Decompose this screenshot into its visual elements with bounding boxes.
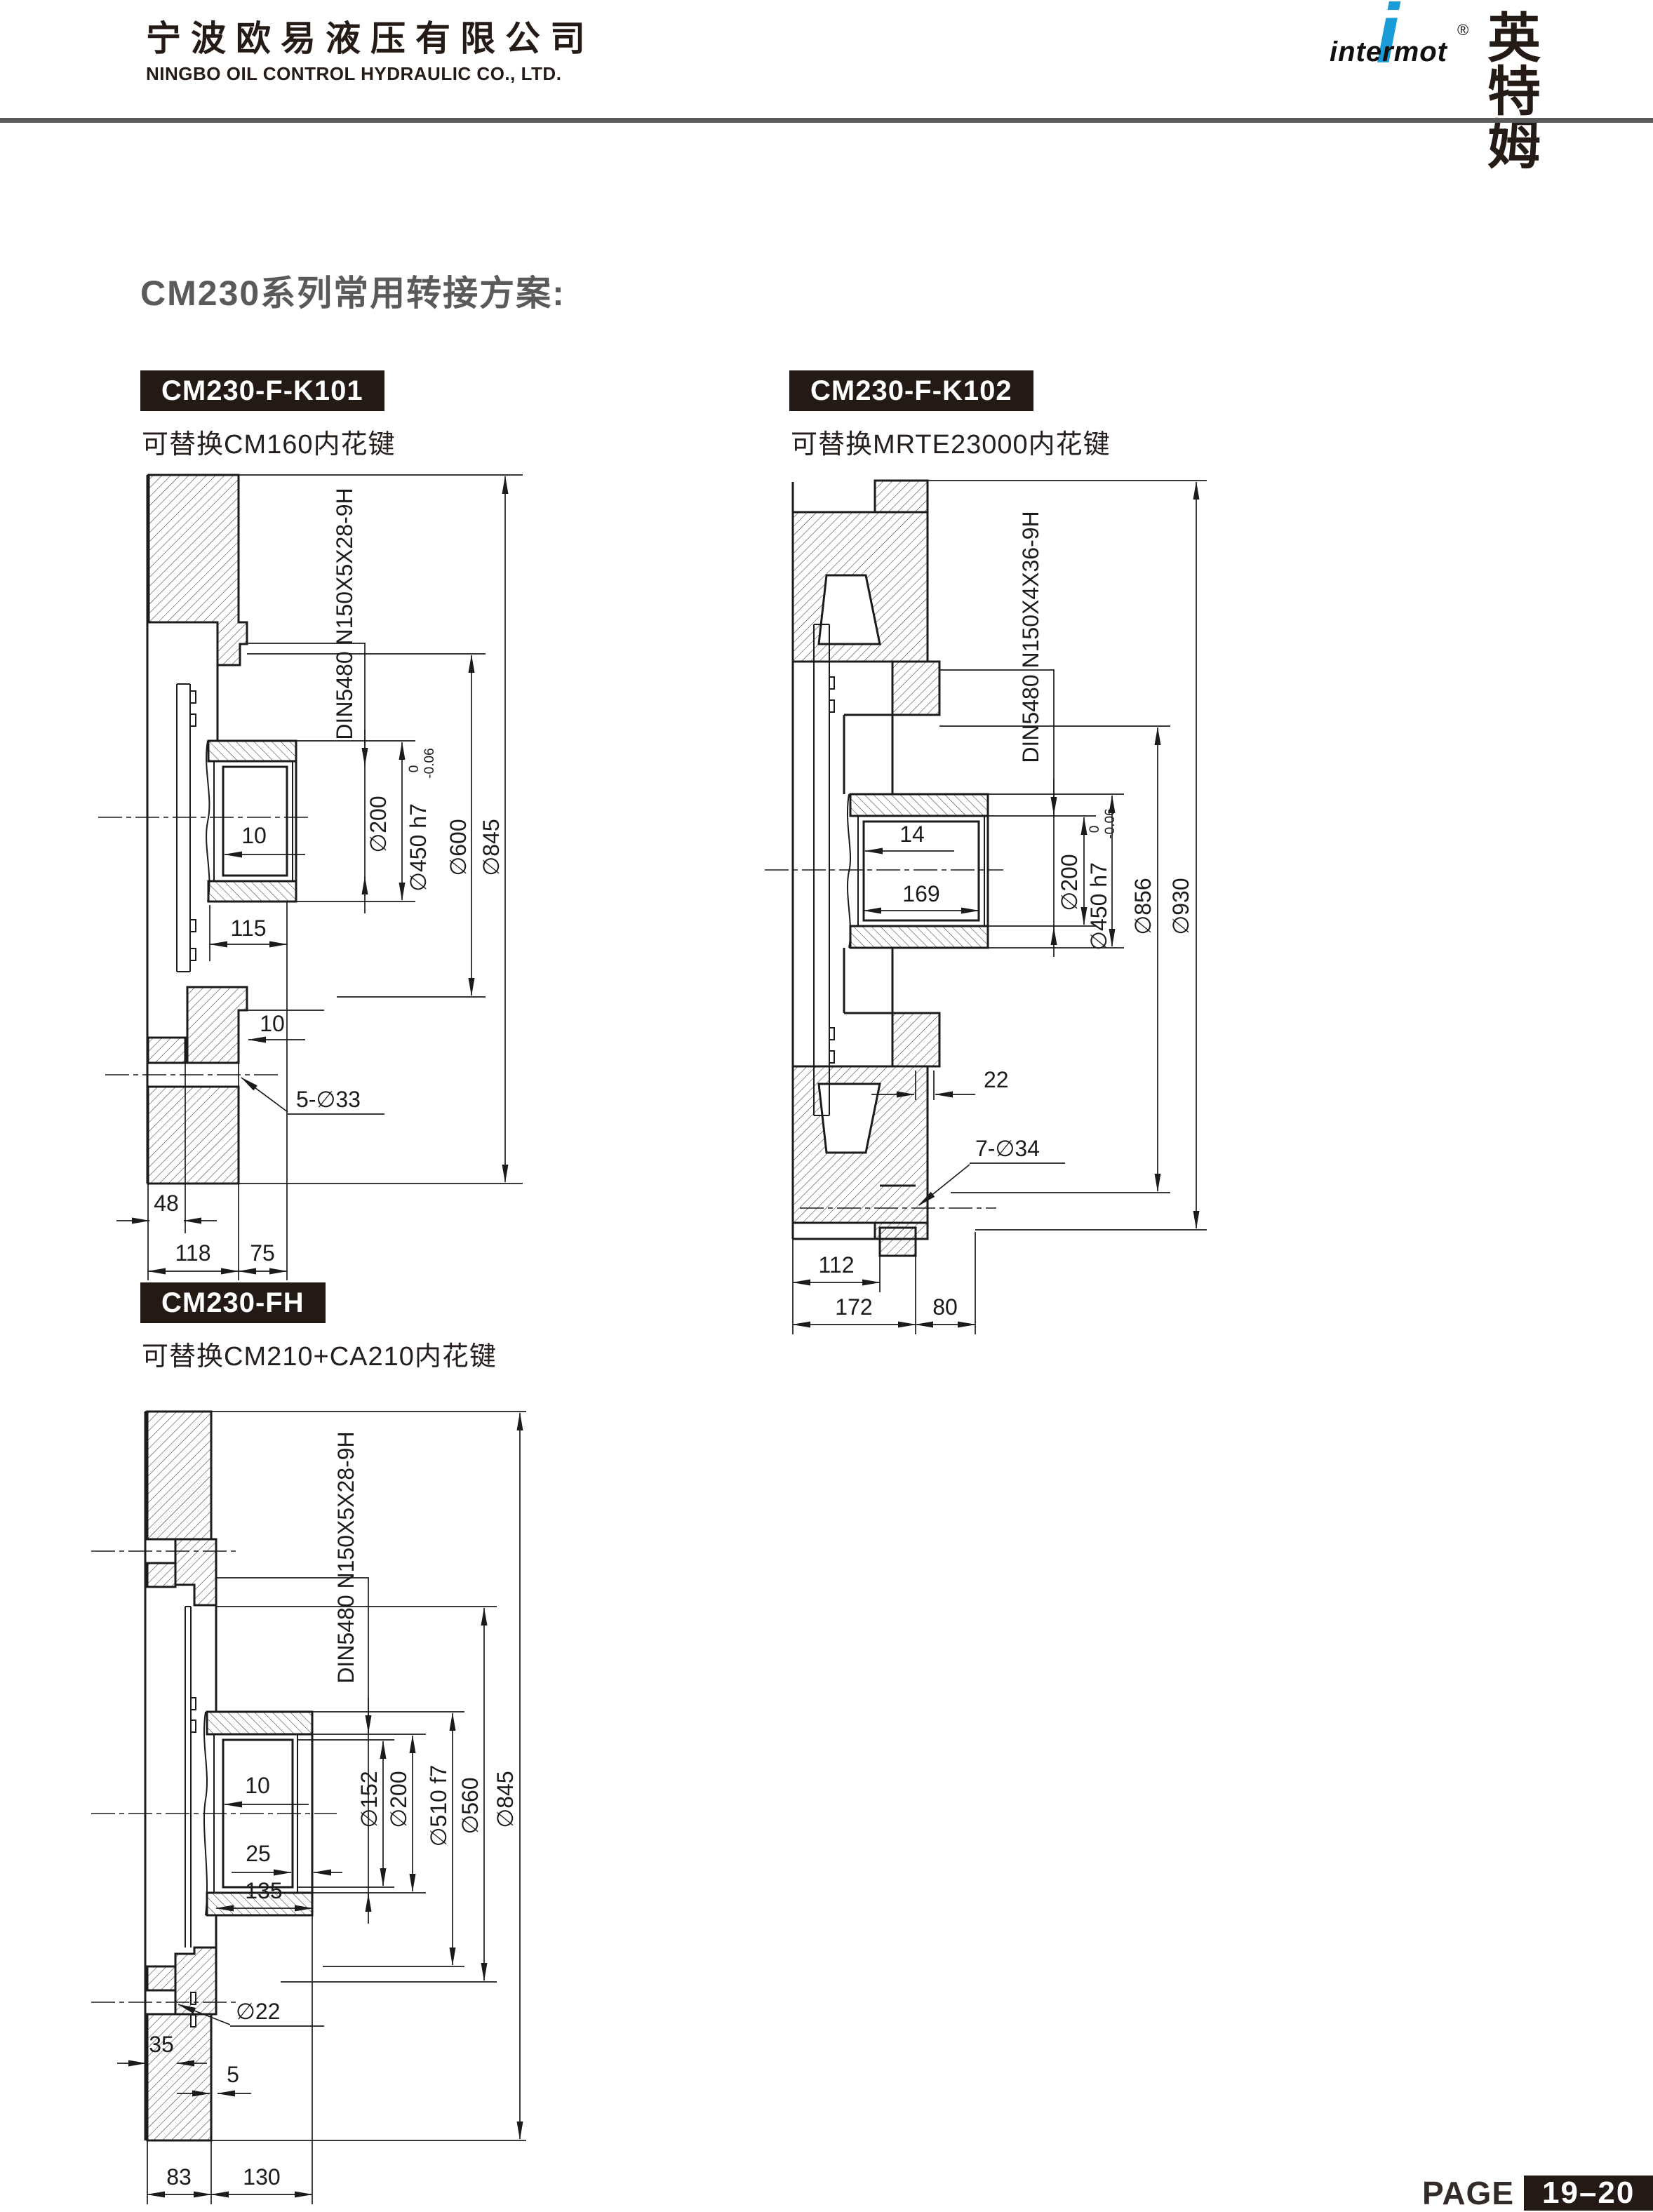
bolt-holes-label: 5-∅33	[296, 1087, 361, 1112]
company-name-en: NINGBO OIL CONTROL HYDRAULIC CO., LTD.	[146, 63, 595, 85]
dim-step-10: 10	[260, 1011, 285, 1036]
spline-spec-label: DIN5480 N150X5X28-9H	[333, 1431, 359, 1683]
section-subtitle-fh: 可替换CM210+CA210内花键	[142, 1334, 497, 1373]
dim-25: 25	[246, 1841, 271, 1866]
logo-brand-cn: 英特姆	[1487, 13, 1544, 173]
dim-bore-step: 10	[245, 1773, 270, 1798]
dia-856-label: ∅856	[1130, 878, 1156, 934]
dia-845-label: ∅845	[493, 1771, 518, 1828]
logo-brand-text: intermot	[1330, 36, 1447, 68]
hub-section	[206, 741, 296, 901]
dim-130: 130	[243, 2164, 280, 2190]
dia-510-label: ∅510 f7	[426, 1765, 451, 1847]
dim-22: 22	[984, 1067, 1009, 1092]
flange-section	[147, 475, 247, 1184]
tolerance-upper: 0	[1087, 826, 1102, 833]
dia-200-label: ∅200	[366, 796, 391, 852]
drawing-cm230-fh: DIN5480 N150X5X28-9H ∅152 ∅200 ∅510 f7 ∅…	[56, 1389, 603, 2212]
spline-spec-label: DIN5480 N150X5X28-9H	[332, 488, 357, 739]
registered-mark-icon: ®	[1457, 21, 1468, 39]
dim-172: 172	[835, 1294, 872, 1320]
spline-spec-label: DIN5480 N150X4X36-9H	[1018, 511, 1043, 763]
dia-560-label: ∅560	[457, 1777, 483, 1834]
section-label-fh: CM230-FH	[140, 1282, 326, 1323]
dim-14: 14	[899, 822, 925, 847]
page-number-badge: 19–20	[1524, 2176, 1653, 2211]
catalog-page: 宁波欧易液压有限公司 NINGBO OIL CONTROL HYDRAULIC …	[0, 0, 1653, 2212]
dim-112: 112	[818, 1252, 854, 1278]
dim-135: 135	[245, 1878, 282, 1903]
company-name-cn: 宁波欧易液压有限公司	[146, 21, 595, 56]
tolerance-lower: -0.06	[1103, 808, 1118, 838]
dim-bore-step: 10	[241, 823, 267, 848]
header-divider	[0, 118, 1653, 123]
intermot-wordmark: i intermot ®	[1330, 6, 1463, 83]
dia-200-label: ∅200	[386, 1771, 411, 1828]
section-label-k102: CM230-F-K102	[789, 370, 1033, 411]
dim-118: 118	[175, 1240, 210, 1266]
dim-83: 83	[166, 2164, 192, 2190]
tolerance-upper: 0	[407, 765, 422, 773]
dia-152-label: ∅152	[356, 1771, 382, 1828]
bolt-hole-label: ∅22	[236, 1999, 280, 2024]
mating-flange-plate	[177, 684, 196, 972]
dim-115: 115	[230, 916, 266, 941]
tolerance-lower: -0.06	[422, 748, 437, 778]
dim-80: 80	[932, 1294, 958, 1320]
footer-page-label: PAGE	[1422, 2174, 1514, 2212]
bolt-holes-label: 7-∅34	[975, 1136, 1040, 1161]
dia-930-label: ∅930	[1168, 878, 1193, 934]
dim-75: 75	[250, 1240, 275, 1266]
dim-169: 169	[902, 881, 939, 906]
section-label-k101: CM230-F-K101	[140, 370, 384, 411]
hub-section	[848, 794, 988, 948]
company-header: 宁波欧易液压有限公司 NINGBO OIL CONTROL HYDRAULIC …	[146, 21, 595, 85]
dim-48: 48	[154, 1191, 179, 1216]
dia-600-label: ∅600	[446, 819, 471, 876]
dim-35: 35	[149, 2032, 174, 2057]
drawing-cm230-f-k101: DIN5480 N150X5X28-9H ∅200 ∅450 h7 0 -0.0…	[70, 442, 617, 1284]
dim-5: 5	[227, 2062, 239, 2087]
dia-200-label: ∅200	[1057, 854, 1082, 911]
dia-450-label: ∅450 h7	[1086, 862, 1111, 951]
page-footer: PAGE 19–20	[1422, 2174, 1653, 2212]
flange-section	[793, 481, 939, 1256]
dia-845-label: ∅845	[479, 819, 504, 876]
drawing-cm230-f-k102: DIN5480 N150X4X36-9H ∅200 ∅450 h7 0 -0.0…	[744, 442, 1291, 1347]
dia-450-label: ∅450 h7	[406, 803, 431, 892]
page-title: CM230系列常用转接方案:	[140, 265, 565, 316]
